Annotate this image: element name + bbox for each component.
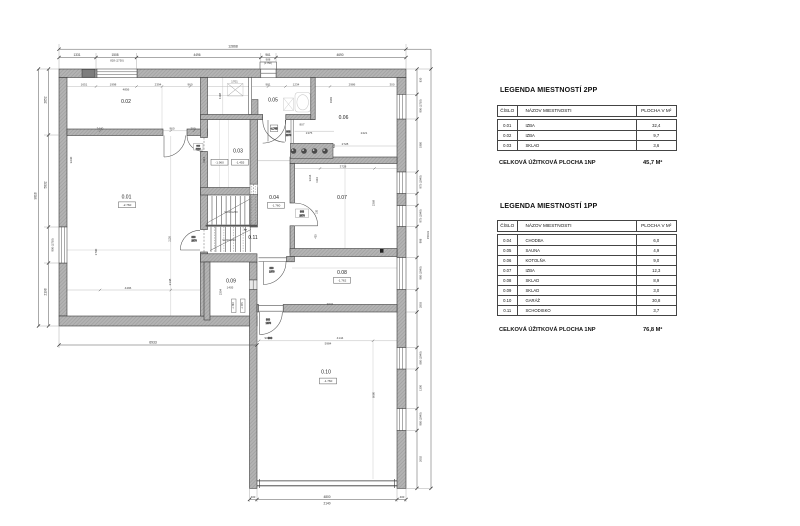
svg-text:2100: 2100 bbox=[169, 236, 172, 242]
svg-text:540: 540 bbox=[332, 143, 336, 148]
svg-text:800: 800 bbox=[266, 318, 271, 321]
svg-text:6933: 6933 bbox=[149, 340, 157, 344]
svg-text:1998: 1998 bbox=[110, 82, 117, 86]
svg-text:998: 998 bbox=[419, 238, 423, 243]
svg-text:2140: 2140 bbox=[323, 501, 330, 505]
svg-text:-1.745: -1.745 bbox=[241, 302, 244, 309]
svg-text:1701: 1701 bbox=[231, 80, 238, 84]
svg-text:3031: 3031 bbox=[327, 302, 334, 306]
svg-text:400: 400 bbox=[315, 234, 318, 239]
svg-text:975 (1940): 975 (1940) bbox=[419, 209, 423, 222]
svg-text:0.07: 0.07 bbox=[337, 195, 347, 201]
svg-text:2421: 2421 bbox=[361, 131, 368, 135]
svg-text:12868: 12868 bbox=[228, 45, 238, 49]
svg-text:830: 830 bbox=[419, 77, 423, 82]
svg-text:2148: 2148 bbox=[168, 278, 172, 285]
svg-text:1405: 1405 bbox=[227, 286, 234, 290]
svg-text:3234: 3234 bbox=[308, 174, 312, 181]
svg-text:1970: 1970 bbox=[266, 322, 272, 325]
svg-text:(1750): (1750) bbox=[264, 61, 272, 65]
svg-text:900 (1750): 900 (1750) bbox=[419, 99, 423, 112]
svg-text:980 (1940): 980 (1940) bbox=[419, 266, 423, 279]
svg-text:900: 900 bbox=[264, 336, 269, 340]
svg-text:2803: 2803 bbox=[419, 302, 423, 308]
svg-text:1983: 1983 bbox=[329, 96, 333, 103]
svg-text:0.06: 0.06 bbox=[339, 115, 349, 121]
svg-text:3230: 3230 bbox=[69, 156, 73, 163]
svg-text:975 (1940): 975 (1940) bbox=[419, 175, 423, 188]
svg-text:2368: 2368 bbox=[372, 199, 376, 206]
svg-text:3440: 3440 bbox=[97, 127, 104, 131]
svg-text:4856: 4856 bbox=[123, 88, 130, 92]
svg-text:2070: 2070 bbox=[286, 134, 292, 137]
svg-text:0.02: 0.02 bbox=[121, 99, 131, 105]
svg-text:9818: 9818 bbox=[34, 192, 38, 199]
svg-text:1651: 1651 bbox=[81, 82, 88, 86]
svg-text:-2.760: -2.760 bbox=[123, 203, 132, 207]
svg-text:-1.960: -1.960 bbox=[215, 160, 224, 164]
svg-text:1508: 1508 bbox=[111, 53, 118, 57]
svg-text:-1.760: -1.760 bbox=[272, 203, 281, 207]
svg-text:1114: 1114 bbox=[202, 157, 206, 163]
svg-text:6080: 6080 bbox=[372, 391, 376, 398]
svg-text:2020: 2020 bbox=[196, 148, 202, 150]
svg-text:0.09: 0.09 bbox=[226, 279, 236, 285]
svg-text:2394: 2394 bbox=[155, 82, 162, 86]
svg-text:1234: 1234 bbox=[293, 82, 300, 86]
svg-text:0.08: 0.08 bbox=[337, 270, 347, 276]
svg-text:2304: 2304 bbox=[219, 288, 223, 295]
svg-text:400: 400 bbox=[400, 495, 405, 499]
svg-text:1300: 1300 bbox=[419, 385, 423, 391]
svg-text:2198: 2198 bbox=[44, 288, 48, 295]
svg-text:1134: 1134 bbox=[315, 177, 319, 183]
svg-text:-1.760: -1.760 bbox=[324, 379, 333, 383]
svg-text:-1.762: -1.762 bbox=[338, 278, 347, 282]
svg-text:2986: 2986 bbox=[349, 82, 356, 86]
svg-text:828 (1750): 828 (1750) bbox=[110, 58, 124, 62]
svg-text:4496: 4496 bbox=[125, 286, 132, 290]
svg-text:100: 100 bbox=[316, 209, 319, 214]
svg-text:807: 807 bbox=[299, 122, 304, 126]
svg-text:1970: 1970 bbox=[191, 240, 197, 243]
svg-text:4800: 4800 bbox=[323, 495, 330, 499]
svg-text:9x200x250: 9x200x250 bbox=[224, 210, 238, 214]
svg-text:5984: 5984 bbox=[325, 342, 332, 346]
svg-text:9x200x250: 9x200x250 bbox=[222, 238, 236, 242]
svg-text:2002: 2002 bbox=[419, 456, 423, 462]
svg-text:961: 961 bbox=[265, 53, 271, 57]
svg-text:960: 960 bbox=[187, 82, 192, 86]
svg-text:1970: 1970 bbox=[299, 214, 305, 217]
svg-text:1970: 1970 bbox=[269, 271, 275, 274]
svg-text:2728: 2728 bbox=[342, 142, 349, 146]
svg-text:981: 981 bbox=[265, 82, 270, 86]
svg-text:400: 400 bbox=[251, 495, 256, 499]
svg-text:4690: 4690 bbox=[336, 53, 343, 57]
svg-text:2652: 2652 bbox=[44, 96, 48, 103]
svg-text:0.03: 0.03 bbox=[233, 149, 243, 155]
svg-text:1980: 1980 bbox=[419, 142, 423, 148]
svg-text:0.04: 0.04 bbox=[269, 195, 279, 201]
svg-text:4496: 4496 bbox=[193, 53, 200, 57]
svg-text:1790: 1790 bbox=[94, 248, 98, 255]
svg-text:0.05: 0.05 bbox=[268, 98, 278, 104]
svg-text:0.10: 0.10 bbox=[321, 370, 331, 376]
svg-text:3728: 3728 bbox=[340, 165, 347, 169]
svg-text:-1.745: -1.745 bbox=[271, 127, 278, 130]
svg-text:-1.455: -1.455 bbox=[236, 160, 245, 164]
svg-text:1198: 1198 bbox=[218, 93, 222, 99]
svg-text:0.01: 0.01 bbox=[122, 195, 132, 201]
svg-text:300: 300 bbox=[389, 82, 394, 86]
svg-text:5832: 5832 bbox=[44, 181, 48, 188]
svg-text:808: 808 bbox=[300, 211, 305, 214]
svg-text:15031: 15031 bbox=[426, 230, 430, 239]
svg-text:880 (1940): 880 (1940) bbox=[419, 351, 423, 364]
svg-text:0.11: 0.11 bbox=[248, 235, 258, 241]
svg-text:980 (1940): 980 (1940) bbox=[419, 412, 423, 425]
svg-text:-1.760: -1.760 bbox=[232, 302, 235, 309]
svg-text:4144: 4144 bbox=[337, 336, 344, 340]
svg-text:900 (1750): 900 (1750) bbox=[51, 238, 55, 251]
svg-text:1375: 1375 bbox=[306, 131, 313, 135]
svg-text:960: 960 bbox=[169, 127, 174, 131]
svg-text:800: 800 bbox=[270, 267, 275, 270]
svg-text:1331: 1331 bbox=[73, 53, 80, 57]
